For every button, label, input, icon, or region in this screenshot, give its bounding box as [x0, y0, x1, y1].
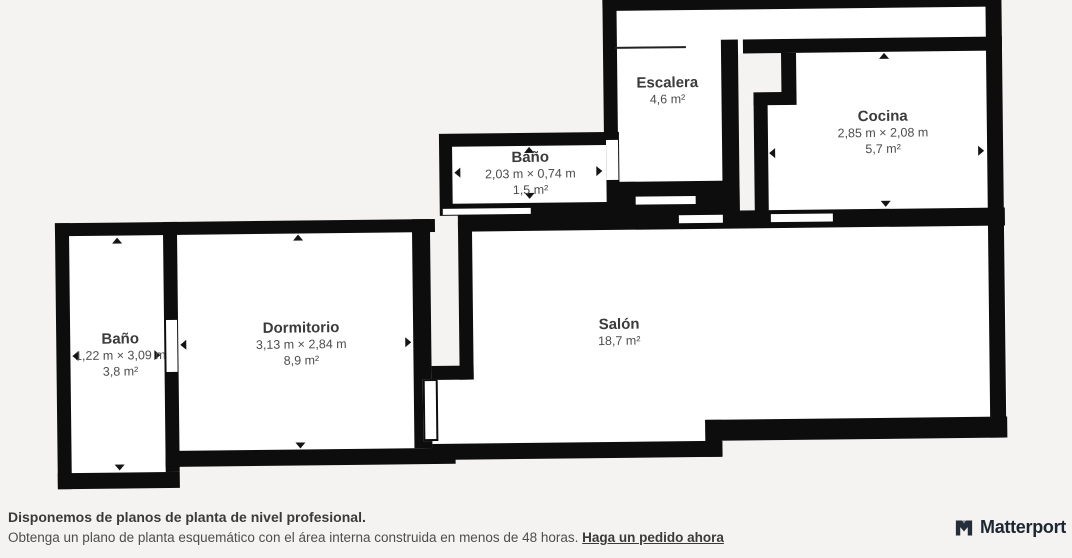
dim-arrow-down-icon [295, 442, 305, 448]
wall [705, 416, 1007, 440]
footer-body: Obtenga un plano de planta esquemático c… [8, 530, 724, 545]
dim-arrow-left-icon [769, 148, 775, 158]
room-dimensions: 2,85 m × 2,08 m [813, 124, 953, 142]
room-label-bano-izquierdo: Baño 1,22 m × 3,09 m 3,8 m² [45, 330, 196, 381]
floor-plan-canvas: Escalera 4,6 m² Cocina 2,85 m × 2,08 m 5… [0, 0, 1072, 552]
room-dimensions: 3,13 m × 2,84 m [220, 336, 382, 354]
room-label-dormitorio: Dormitorio 3,13 m × 2,84 m 8,9 m² [220, 319, 383, 370]
matterport-wordmark: Matterport [980, 517, 1066, 538]
matterport-m-icon [954, 518, 974, 538]
dim-arrow-right-icon [978, 146, 984, 156]
room-salon-area [443, 207, 1008, 443]
wall [743, 37, 1002, 54]
footer-body-text: Obtenga un plano de planta esquemático c… [8, 530, 578, 545]
order-now-link[interactable]: Haga un pedido ahora [582, 530, 724, 545]
room-label-escalera: Escalera 4,6 m² [597, 74, 737, 109]
room-label-bano-superior: Baño 2,03 m × 0,74 m 1,5 m² [455, 148, 606, 199]
room-area: 5,7 m² [813, 140, 953, 158]
door-opening [606, 140, 618, 180]
wall [458, 223, 474, 380]
wall [165, 448, 455, 467]
room-dimensions: 2,03 m × 0,74 m [455, 165, 605, 183]
dim-arrow-down-icon [881, 201, 891, 207]
room-name: Baño [45, 330, 195, 349]
footer-headline: Disponemos de planos de planta de nivel … [8, 509, 366, 525]
room-area: 3,8 m² [45, 363, 195, 381]
room-area: 8,9 m² [220, 352, 382, 370]
room-name: Salón [559, 315, 679, 333]
room-label-cocina: Cocina 2,85 m × 2,08 m 5,7 m² [813, 107, 954, 158]
dim-arrow-up-icon [112, 238, 122, 244]
room-name: Escalera [597, 74, 737, 93]
door-opening [636, 196, 696, 205]
door-leaf [423, 379, 439, 441]
dim-arrow-up-icon [293, 234, 303, 240]
room-name: Cocina [813, 107, 953, 126]
dim-arrow-right-icon [405, 337, 411, 347]
wall [58, 472, 180, 489]
room-label-salon: Salón 18,7 m² [559, 315, 679, 349]
room-area: 1,5 m² [455, 181, 605, 199]
door-opening [443, 208, 531, 215]
door-opening [771, 213, 833, 222]
dim-arrow-down-icon [115, 465, 125, 471]
floor-plan: Escalera 4,6 m² Cocina 2,85 m × 2,08 m 5… [0, 0, 1072, 558]
room-name: Dormitorio [220, 319, 382, 338]
wall [432, 441, 722, 460]
room-area: 4,6 m² [597, 91, 737, 109]
room-dimensions: 1,22 m × 3,09 m [45, 347, 195, 365]
footer: Disponemos de planos de planta de nivel … [0, 505, 1072, 552]
door-opening [679, 215, 723, 223]
dim-arrow-up-icon [879, 53, 889, 59]
exterior-notch [430, 216, 460, 366]
room-name: Baño [455, 148, 605, 167]
wall [754, 99, 769, 213]
room-area: 18,7 m² [559, 332, 679, 349]
matterport-logo[interactable]: Matterport [954, 517, 1066, 538]
